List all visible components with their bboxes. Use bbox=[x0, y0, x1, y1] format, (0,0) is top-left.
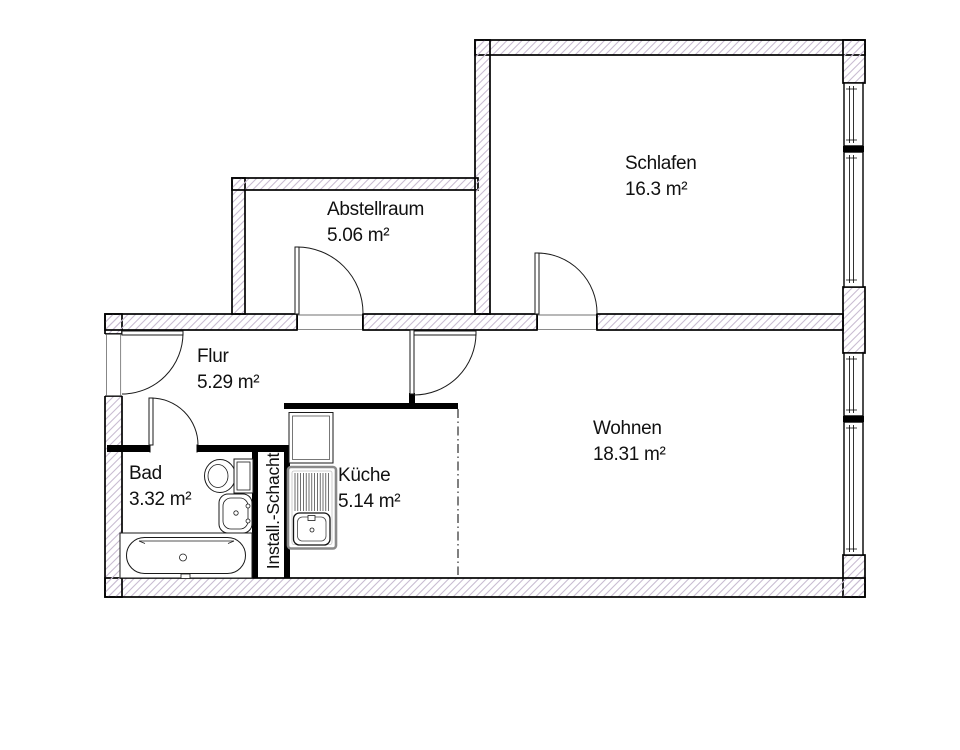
room-name: Flur bbox=[197, 344, 259, 370]
door-abstellraum bbox=[295, 247, 363, 314]
wall-kueche-top bbox=[284, 403, 458, 409]
kitchen-cabinet-icon bbox=[289, 413, 333, 464]
wall-right-pier-top bbox=[843, 40, 865, 83]
room-area: 5.14 m² bbox=[338, 489, 400, 515]
room-label-wohnen: Wohnen 18.31 m² bbox=[593, 416, 666, 468]
room-name: Küche bbox=[338, 463, 400, 489]
wall-abstellraum-top bbox=[232, 178, 478, 190]
wall-mid-right bbox=[597, 314, 843, 330]
wall-schlafen-divider bbox=[475, 40, 490, 314]
room-name: Wohnen bbox=[593, 416, 666, 442]
washbasin-icon bbox=[219, 494, 252, 533]
wall-bottom bbox=[105, 578, 865, 597]
room-area: 18.31 m² bbox=[593, 442, 666, 468]
door-bad bbox=[149, 398, 198, 445]
room-area: 3.32 m² bbox=[129, 487, 191, 513]
room-name: Schlafen bbox=[625, 151, 697, 177]
room-label-abstellraum: Abstellraum 5.06 m² bbox=[327, 197, 424, 249]
room-label-kueche: Küche 5.14 m² bbox=[338, 463, 400, 515]
room-label-bad: Bad 3.32 m² bbox=[129, 461, 191, 513]
door-wohnen bbox=[410, 330, 476, 395]
wall-right-pier-mid bbox=[843, 287, 865, 353]
kitchen-sink-icon bbox=[288, 467, 336, 549]
floor-plan-canvas: Schlafen 16.3 m² Abstellraum 5.06 m² Flu… bbox=[0, 0, 960, 750]
room-area: 5.06 m² bbox=[327, 223, 424, 249]
window-schlafen bbox=[843, 83, 864, 287]
wall-mid-left bbox=[105, 314, 297, 330]
wall-bad-top-left bbox=[107, 445, 150, 452]
door-schlafen bbox=[535, 253, 597, 314]
room-area: 16.3 m² bbox=[625, 177, 697, 203]
room-name: Abstellraum bbox=[327, 197, 424, 223]
room-area: 5.29 m² bbox=[197, 370, 259, 396]
bathtub-icon bbox=[120, 533, 252, 579]
room-label-schlafen: Schlafen 16.3 m² bbox=[625, 151, 697, 203]
wall-top bbox=[475, 40, 865, 55]
floor-plan-drawing bbox=[0, 0, 960, 750]
wall-abstellraum-left bbox=[232, 178, 245, 314]
window-wohnen bbox=[843, 353, 864, 555]
shaft-label: Install.-Schacht bbox=[263, 444, 283, 578]
room-label-flur: Flur 5.29 m² bbox=[197, 344, 259, 396]
door-entrance bbox=[122, 331, 183, 394]
wall-left-lower bbox=[105, 396, 122, 597]
doors bbox=[122, 247, 597, 445]
room-name: Bad bbox=[129, 461, 191, 487]
toilet-icon bbox=[205, 459, 254, 493]
wall-mid-center bbox=[363, 314, 537, 330]
